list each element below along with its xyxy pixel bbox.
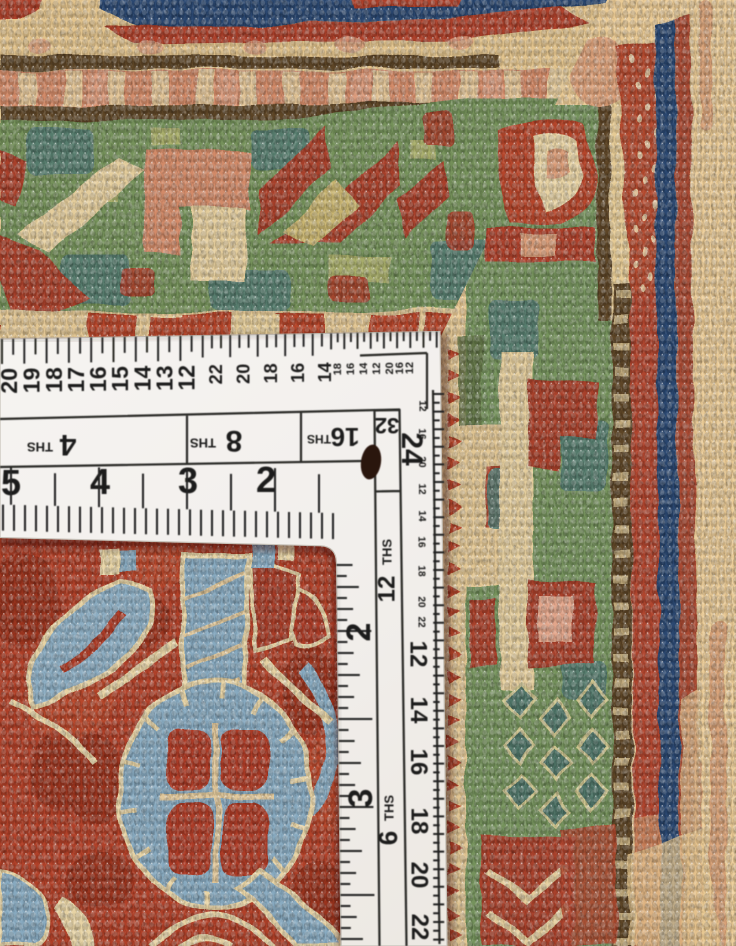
svg-text:12: 12 [405,641,432,668]
svg-text:18: 18 [405,808,432,835]
svg-text:2: 2 [340,623,378,642]
svg-text:8: 8 [226,424,243,457]
svg-text:12: 12 [174,365,200,391]
svg-text:14: 14 [416,510,427,522]
svg-text:16: 16 [416,536,427,548]
svg-text:4: 4 [59,428,76,461]
svg-text:22: 22 [406,914,433,941]
svg-text:20: 20 [234,364,254,384]
svg-text:22: 22 [415,616,426,628]
svg-text:14: 14 [358,362,370,375]
svg-text:2: 2 [256,459,276,500]
svg-text:12: 12 [416,400,427,412]
svg-text:12: 12 [404,362,416,374]
svg-text:18: 18 [332,363,344,375]
svg-text:18: 18 [261,363,281,383]
svg-text:6: 6 [373,831,403,845]
svg-text:THS: THS [381,795,396,821]
svg-text:THS: THS [307,432,331,446]
svg-text:THS: THS [190,436,216,451]
svg-text:16: 16 [345,363,357,375]
svg-text:12: 12 [371,362,383,374]
svg-text:16: 16 [405,749,432,776]
svg-text:20: 20 [416,456,427,468]
svg-text:12: 12 [373,576,400,603]
svg-text:20: 20 [406,862,433,889]
svg-text:3: 3 [342,789,380,808]
svg-text:16: 16 [331,422,360,452]
svg-text:16: 16 [288,363,308,383]
svg-text:THS: THS [379,539,394,565]
svg-text:20: 20 [415,596,426,608]
svg-text:22: 22 [206,364,226,384]
svg-text:THS: THS [27,440,53,455]
svg-text:12: 12 [416,483,427,495]
svg-text:16: 16 [416,428,427,440]
svg-text:14: 14 [405,697,432,724]
svg-text:18: 18 [416,565,427,577]
